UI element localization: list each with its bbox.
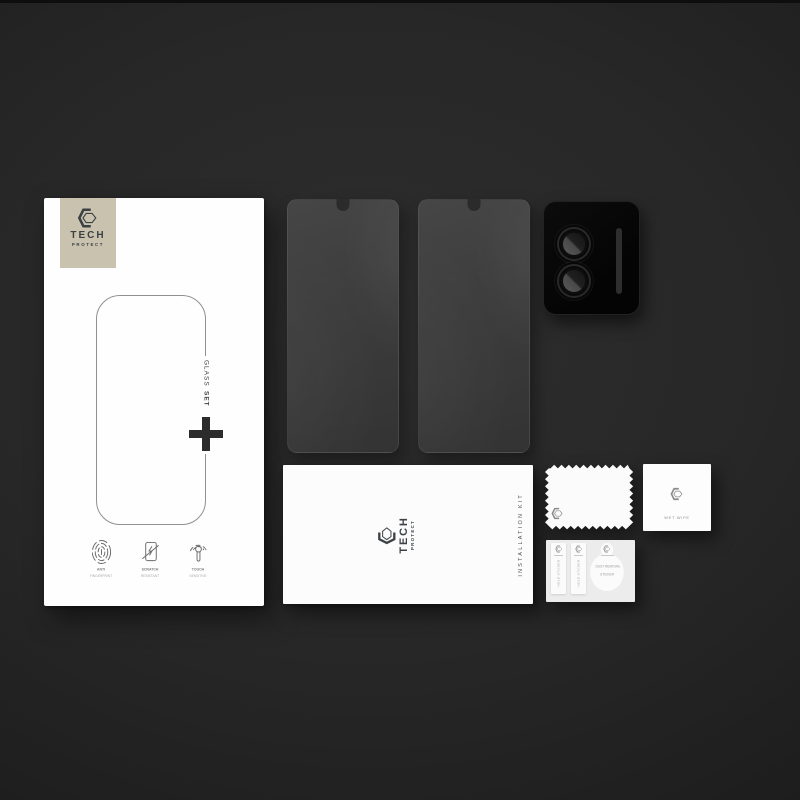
hexagon-logo-icon [603, 545, 611, 553]
camera-notch-cutout [468, 199, 481, 211]
scratch-icon [139, 539, 162, 565]
camera-lens-cutout-1 [557, 227, 591, 261]
camera-lens-cutout-2 [557, 264, 591, 298]
dust-removal-sticker: DUST REMOVAL STICKER [584, 542, 630, 598]
hexagon-logo-icon [575, 545, 583, 553]
tempered-glass-2 [418, 199, 530, 453]
glass-set-label: GLASSSET [203, 360, 210, 406]
wet-wipe-packet: WET WIPE [643, 464, 711, 531]
feature-anti-fingerprint: ANTI FINGERPRINT [77, 539, 125, 582]
sticker-card: HOLD STICKER HOLD STICKER DUST REMOVAL S [546, 540, 635, 602]
hold-sticker-strip-1: HOLD STICKER [551, 543, 566, 594]
fingerprint-icon [90, 539, 113, 565]
hexagon-logo-icon [670, 487, 684, 501]
installation-kit-label: INSTALLATION KIT [518, 465, 524, 604]
divider [554, 555, 563, 556]
dry-wipe-cloth [545, 463, 635, 533]
feature-icons-row: ANTI FINGERPRINT SCRATCH RESISTANT [44, 539, 264, 599]
divider [601, 555, 614, 556]
touch-icon [187, 539, 210, 565]
tempered-glass-1 [287, 199, 399, 453]
hexagon-logo-icon [551, 507, 564, 520]
hexagon-logo-icon [555, 545, 563, 553]
plus-icon [189, 417, 223, 451]
photo-top-edge [0, 0, 800, 3]
flash-cutout [616, 228, 622, 294]
zigzag-cloth-shape [545, 463, 635, 533]
kit-brand-word-tech: TECH [398, 500, 409, 570]
dust-sticker-label: DUST REMOVAL [596, 565, 619, 569]
hold-sticker-label: HOLD STICKER [557, 560, 560, 587]
camera-notch-cutout [337, 199, 350, 211]
wet-wipe-label: WET WIPE [664, 516, 690, 520]
feature-scratch-resistant: SCRATCH RESISTANT [126, 539, 174, 582]
brand-word-tech: TECH [60, 231, 116, 241]
product-photo: TECH PROTECT GLASSSET ANTI FINGERPRINT [0, 0, 800, 800]
product-box: TECH PROTECT GLASSSET ANTI FINGERPRINT [44, 198, 264, 606]
installation-kit-envelope: TECH PROTECT INSTALLATION KIT [283, 465, 533, 604]
phone-outline [96, 295, 206, 525]
hold-sticker-label: HOLD STICKER [577, 560, 580, 587]
camera-lens-protector [543, 201, 640, 315]
hexagon-logo-icon [376, 524, 396, 546]
kit-brand-logo: TECH PROTECT [376, 500, 414, 570]
kit-brand-word-protect: PROTECT [410, 500, 414, 570]
divider [574, 555, 583, 556]
brand-word-protect: PROTECT [60, 243, 116, 247]
feature-touch-sensitive: TOUCH SENSITIVE [174, 539, 222, 582]
brand-logo-patch: TECH PROTECT [60, 198, 116, 268]
dust-sticker-label: STICKER [596, 573, 619, 577]
hexagon-logo-icon [76, 207, 100, 229]
